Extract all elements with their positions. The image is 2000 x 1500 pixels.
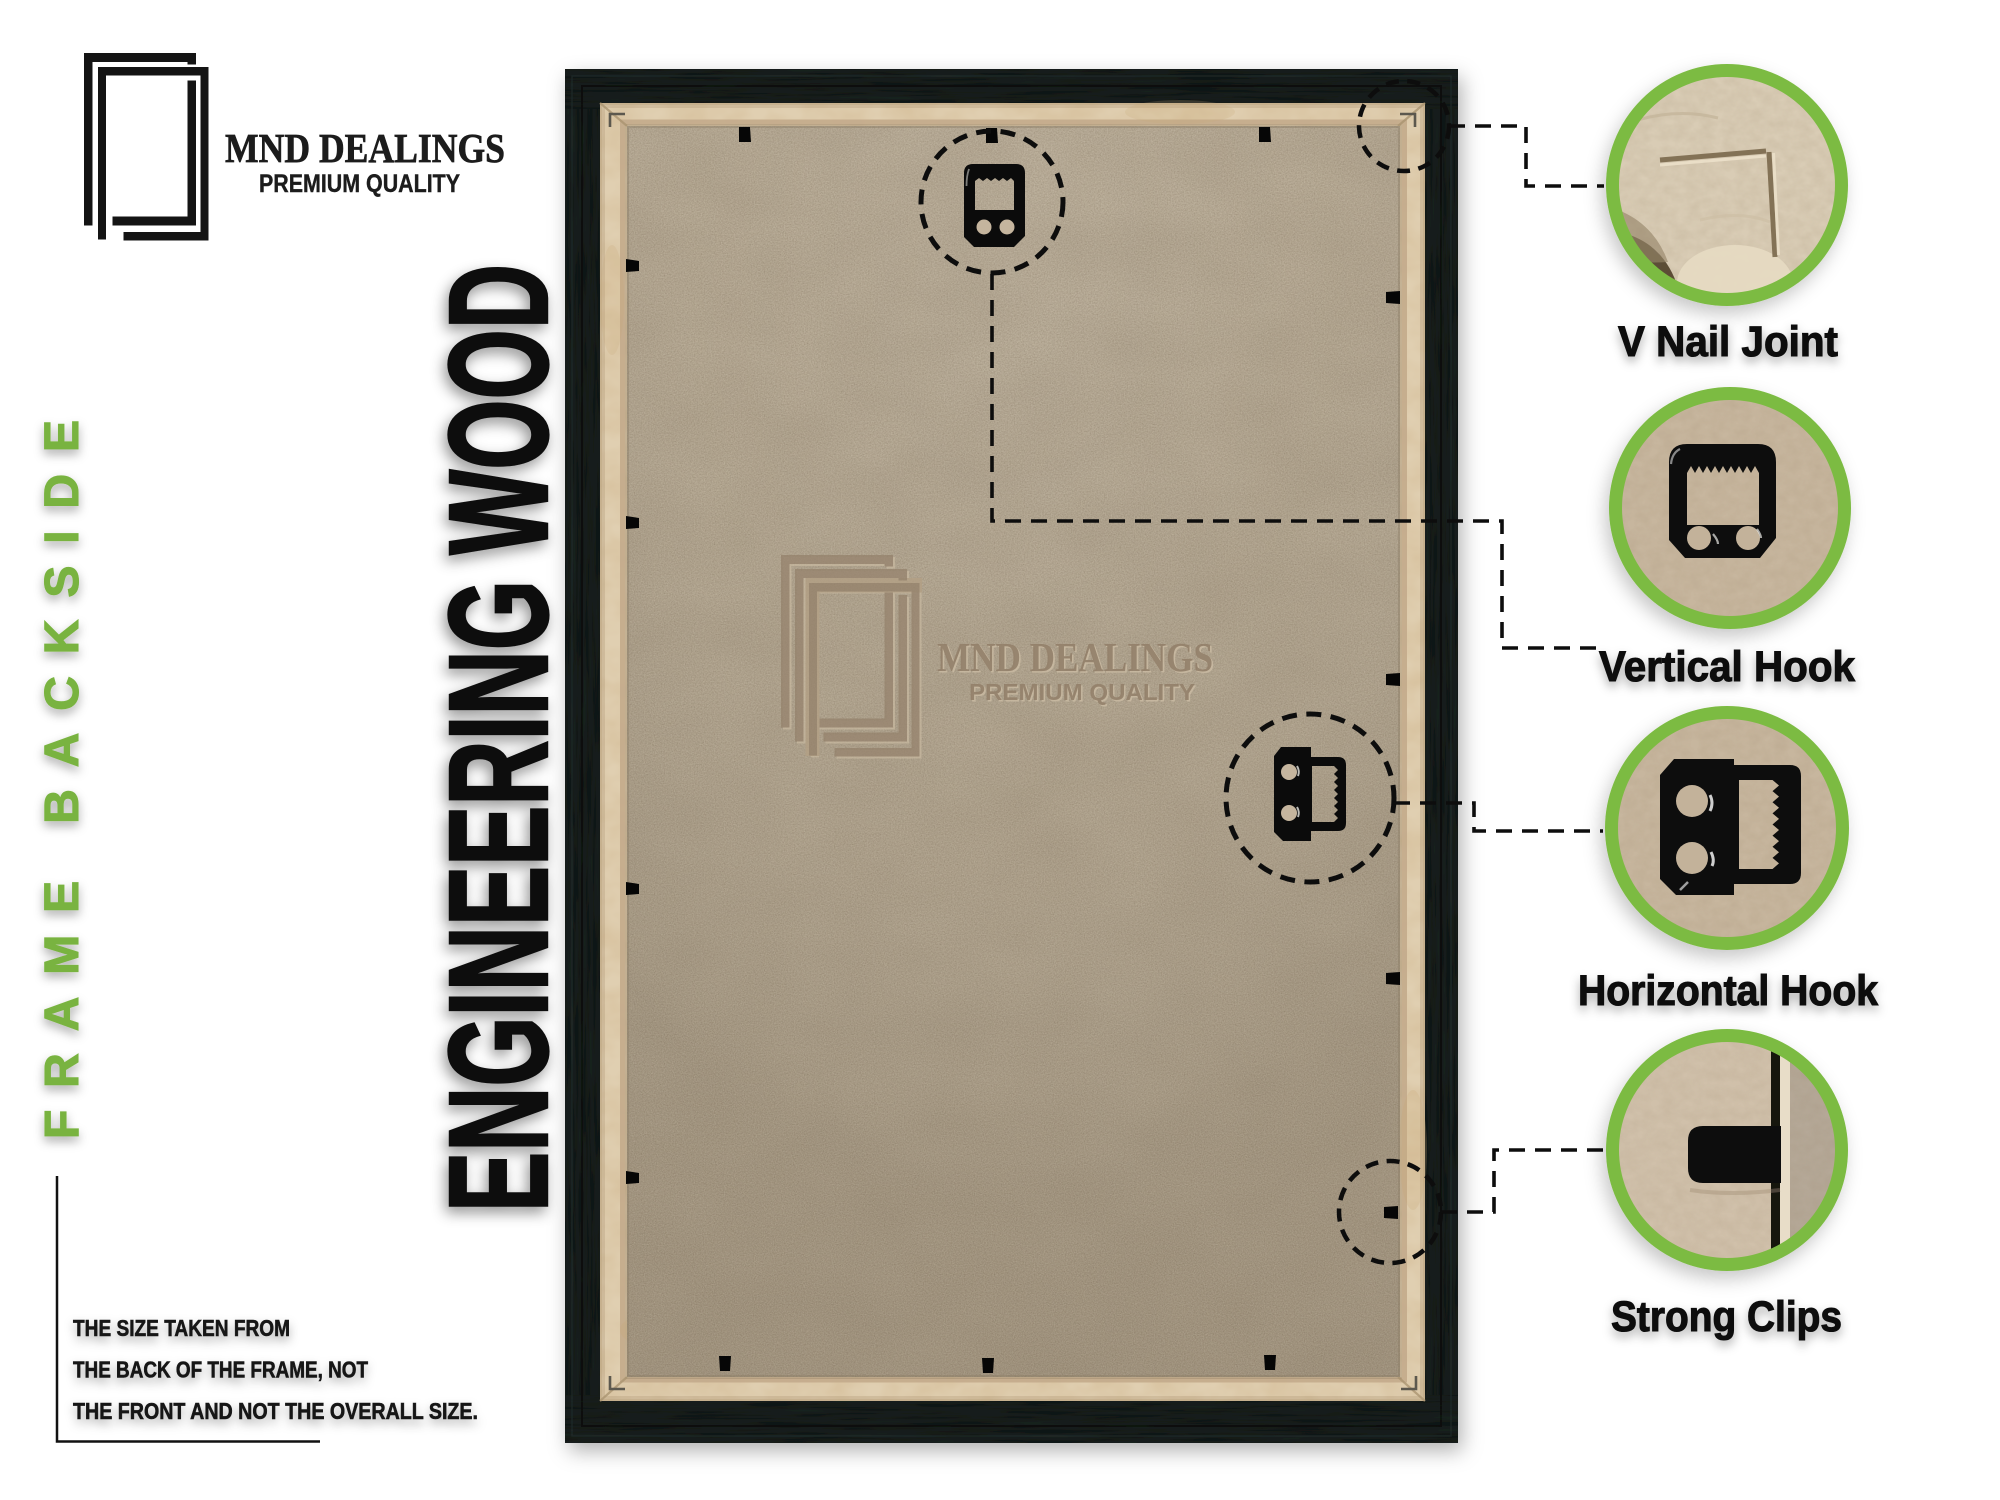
svg-text:MND DEALINGS: MND DEALINGS <box>937 634 1213 680</box>
svg-text:ENGINEERING WOOD: ENGINEERING WOOD <box>419 264 577 1212</box>
svg-text:Vertical Hook: Vertical Hook <box>1599 643 1855 691</box>
svg-text:Horizontal Hook: Horizontal Hook <box>1578 967 1878 1015</box>
svg-text:Strong Clips: Strong Clips <box>1611 1293 1842 1341</box>
svg-text:V Nail Joint: V Nail Joint <box>1618 318 1838 366</box>
svg-text:PREMIUM QUALITY: PREMIUM QUALITY <box>259 170 460 198</box>
svg-text:MND DEALINGS: MND DEALINGS <box>225 125 505 171</box>
svg-text:THE FRONT AND NOT THE OVERALL: THE FRONT AND NOT THE OVERALL SIZE. <box>73 1398 478 1424</box>
svg-text:PREMIUM QUALITY: PREMIUM QUALITY <box>969 679 1195 705</box>
svg-text:THE BACK OF THE FRAME, NOT: THE BACK OF THE FRAME, NOT <box>73 1357 368 1383</box>
svg-text:THE SIZE TAKEN FROM: THE SIZE TAKEN FROM <box>73 1315 290 1341</box>
